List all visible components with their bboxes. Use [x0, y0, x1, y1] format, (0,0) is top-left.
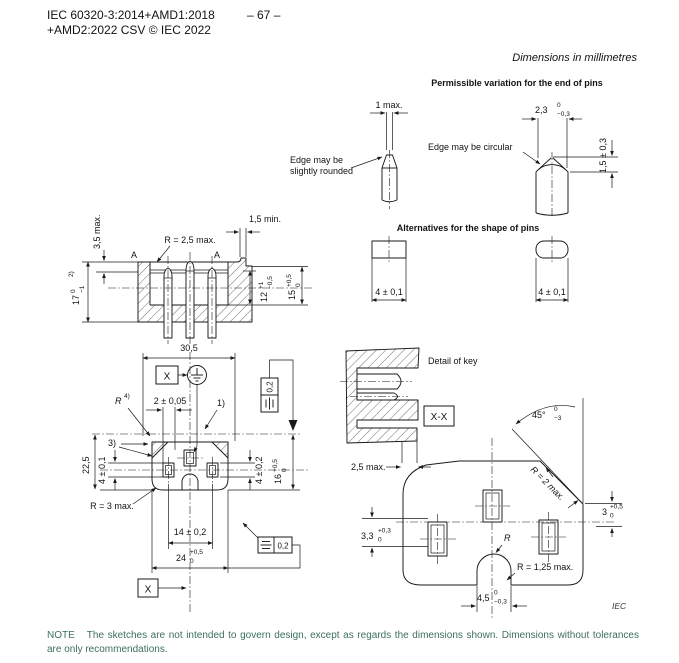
key-detail-drawing: Detail of key X-X 2,5 max.	[340, 348, 478, 472]
pin-end-variation-drawing: Permissible variation for the end of pin…	[290, 78, 618, 218]
dim-17-lo: −1	[79, 285, 86, 293]
edge-circular-label: Edge may be circular	[428, 142, 513, 152]
dim-23-hi: 0	[557, 102, 561, 109]
dim-3-value: 3	[602, 507, 607, 517]
dim-45deg-hi: 0	[554, 406, 558, 413]
dim-45deg-value: 45°	[532, 410, 546, 420]
dim-33-lo: 0	[378, 537, 382, 544]
pin-variation-title: Permissible variation for the end of pin…	[431, 78, 603, 88]
dim-2pm005-label: 2 ± 0,05	[154, 396, 186, 406]
dim-23-value: 2,3	[535, 105, 548, 115]
pin-alternatives-drawing: Alternatives for the shape of pins 4 ± 0…	[372, 223, 568, 302]
dim-45deg-lo: −3	[554, 415, 562, 422]
dim-15min-label: 1,5 min.	[249, 214, 281, 224]
note-label: NOTE	[47, 630, 75, 641]
dim-35max-label: 3,5 max.	[92, 214, 102, 249]
parallelism-frame-horizontal: 0,2	[258, 537, 292, 553]
document-page: IEC 60320-3:2014+AMD1:2018 +AMD2:2022 CS…	[0, 0, 679, 663]
dim-12-lo: −0,5	[267, 276, 274, 289]
figure-credit: IEC	[612, 601, 626, 611]
dim-16-hi: +0,5	[272, 459, 279, 472]
dim-1max-label: 1 max.	[375, 100, 402, 110]
dim-3-lo: 0	[610, 513, 614, 520]
dim-25max-label: 2,5 max.	[351, 462, 386, 472]
dim-17-hi: 0	[70, 289, 77, 293]
technical-drawing: Permissible variation for the end of pin…	[0, 0, 679, 663]
dim-16-value: 16	[273, 474, 283, 484]
dim-45mm-lo: −0,3	[494, 599, 507, 606]
ref-r4-note: 4)	[124, 393, 130, 400]
dim-4pm01-v-label: 4 ± 0,1	[97, 457, 107, 484]
dim-24-hi: +0,5	[190, 549, 203, 556]
dim-12-value: 12	[259, 292, 269, 302]
dim-4pm01-left-label: 4 ± 0,1	[375, 287, 402, 297]
dim-15pm03-label: 1,5 ± 0,3	[598, 138, 608, 173]
pin-alternatives-title: Alternatives for the shape of pins	[397, 223, 540, 233]
dim-r3max-label: R = 3 max.	[90, 501, 134, 511]
datum-x-bottom-label: X	[145, 585, 152, 596]
key-detail-title: Detail of key	[428, 356, 478, 366]
ref-note1-label: 1)	[217, 398, 225, 408]
dim-33-value: 3,3	[361, 531, 374, 541]
dim-15-value: 15	[287, 290, 297, 300]
dim-3-hi: +0,5	[610, 504, 623, 511]
ref-note3-label: 3)	[108, 438, 116, 448]
dim-r125max-label: R = 1,25 max.	[517, 562, 573, 572]
edge-rounded-label-1: Edge may be	[290, 155, 343, 165]
ref-r4-value: R	[115, 396, 122, 406]
note-text: The sketches are not intended to govern …	[47, 630, 639, 655]
inlet-front-view-drawing: 30,5 X R 4) 2 ± 0,05	[81, 343, 310, 612]
edge-rounded-label-2: slightly rounded	[290, 166, 353, 176]
dim-16-lo: 0	[281, 468, 288, 472]
dim-24-lo: 0	[190, 558, 194, 565]
dim-24-value: 24	[176, 553, 186, 563]
dim-r-label: R	[504, 533, 511, 543]
fcf-horizontal-tolerance: 0,2	[277, 542, 289, 551]
dim-r25max-label: R = 2,5 max.	[164, 235, 215, 245]
dim-33-hi: +0,3	[378, 528, 391, 535]
parallelism-frame-vertical: 0,2	[261, 378, 278, 412]
dim-4pm02-label: 4 ± 0,2	[254, 457, 264, 484]
dim-225-label: 22,5	[81, 456, 91, 474]
dim-305-label: 30,5	[180, 343, 198, 353]
datum-x-top-label: X	[164, 372, 171, 383]
dim-45mm-value: 4,5	[477, 593, 490, 603]
dim-17-footnote: 2)	[68, 271, 75, 277]
dim-12-hi: +1	[258, 281, 265, 289]
dim-14pm02-label: 14 ± 0,2	[174, 527, 206, 537]
dim-15-hi: +0,5	[286, 274, 293, 287]
fcf-vertical-tolerance: 0,2	[266, 381, 275, 393]
dim-15-lo: 0	[295, 283, 302, 287]
inlet-section-view-drawing: A A R = 2,5 max. 1,5 min. 3,5 max. 17 0	[68, 214, 312, 344]
section-a-left-label: A	[131, 250, 137, 260]
dim-4pm01-right-label: 4 ± 0,1	[538, 287, 565, 297]
earth-symbol-icon	[188, 366, 207, 385]
dim-45mm-hi: 0	[494, 590, 498, 597]
dim-17-value: 17	[71, 295, 81, 305]
dim-23-lo: −0,3	[557, 111, 570, 118]
section-a-right-label: A	[214, 250, 220, 260]
section-xx-label: X-X	[431, 412, 448, 423]
note-paragraph: NOTEThe sketches are not intended to gov…	[47, 629, 639, 656]
